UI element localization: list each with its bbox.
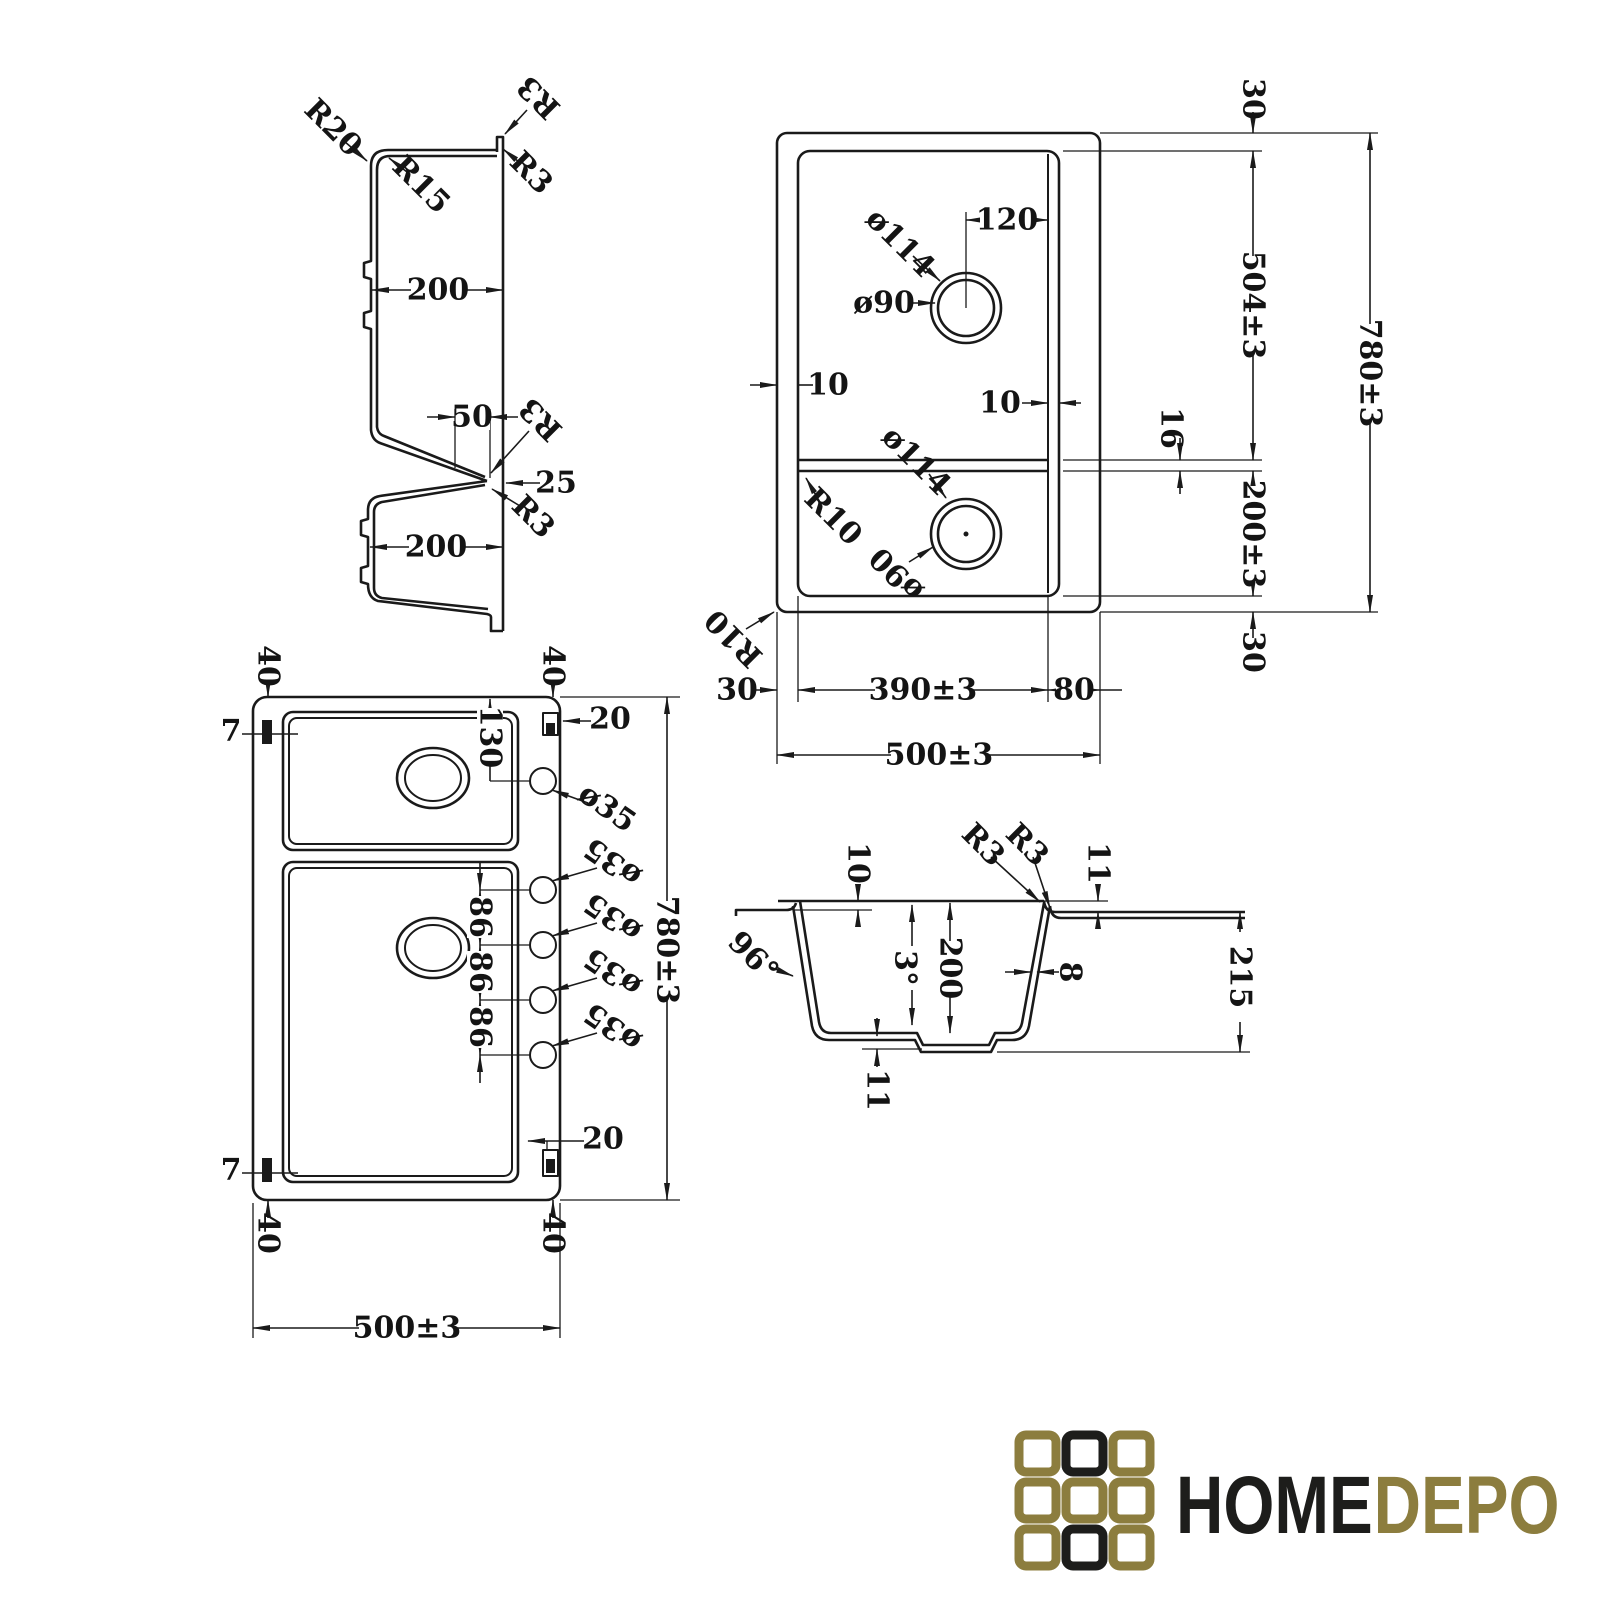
tap-hole-dia-label: ø35 xyxy=(578,995,649,1059)
bowl-depth-label: 200 xyxy=(933,937,968,1000)
overall-length-label: 780±3 xyxy=(1353,319,1388,428)
drain-offset-label: 120 xyxy=(976,203,1039,238)
radius-label: R3 xyxy=(502,144,559,201)
divider-width-label: 16 xyxy=(1154,407,1189,449)
bowl-width-label: 200 xyxy=(407,273,470,308)
tap-hole-dia-label: ø35 xyxy=(578,885,649,949)
hole-pitch-label: 86 xyxy=(463,951,498,993)
overall-width-label: 500±3 xyxy=(353,1311,462,1346)
logo-square xyxy=(1066,1482,1103,1519)
logo-square xyxy=(1019,1529,1056,1566)
overall-width-label: 500±3 xyxy=(885,738,994,773)
side-section-view: 200 200 50 25 R20 R15 R3 R3 R3 R3 xyxy=(297,68,577,631)
bowl-profile-outline xyxy=(736,901,1245,1052)
dimension-lines xyxy=(770,857,1240,1067)
hole-pitch-label: 86 xyxy=(463,1006,498,1048)
draft-angle-label: 3° xyxy=(888,950,923,986)
clip-offset-label: 40 xyxy=(251,645,286,687)
tap-hole-dia-label: ø35 xyxy=(578,940,649,1004)
bowl-width-label: 390±3 xyxy=(869,673,978,708)
logo-square xyxy=(1066,1435,1103,1472)
clip-offset-label: 40 xyxy=(251,1212,286,1254)
brand-logo: HOME DEPO xyxy=(1019,1435,1560,1566)
hole-pitch-label: 86 xyxy=(463,896,498,938)
wall-gap-label: 10 xyxy=(979,386,1021,421)
hole-offset-label: 130 xyxy=(473,706,508,769)
mount-clip xyxy=(546,723,555,735)
clip-size-label: 20 xyxy=(582,1122,624,1157)
drain-center-dot xyxy=(964,532,969,537)
small-bowl-length-label: 200±3 xyxy=(1236,480,1271,589)
edge-offset-label: 30 xyxy=(1236,78,1271,120)
logo-square xyxy=(1113,1529,1150,1566)
logo-wordmark: HOME DEPO xyxy=(1176,1459,1560,1551)
wall-gap-label: 10 xyxy=(807,368,849,403)
technical-drawing-page: 200 200 50 25 R20 R15 R3 R3 R3 R3 xyxy=(0,0,1600,1600)
logo-text-home: HOME xyxy=(1176,1459,1373,1551)
overall-length-label: 780±3 xyxy=(650,896,685,1005)
corner-radius-label: R10 xyxy=(698,602,770,674)
sink-plan-outline xyxy=(253,697,560,1200)
clip-size-label: 7 xyxy=(221,1153,242,1188)
logo-square xyxy=(1113,1482,1150,1519)
logo-text-depo: DEPO xyxy=(1374,1459,1560,1551)
drawing-canvas: 200 200 50 25 R20 R15 R3 R3 R3 R3 xyxy=(0,0,1600,1600)
logo-grid-icon xyxy=(1019,1435,1150,1566)
bottom-slope-label: 11 xyxy=(860,1069,895,1111)
edge-offset-label: 30 xyxy=(716,673,758,708)
corner-radius-label: R10 xyxy=(797,481,869,553)
mount-clip xyxy=(262,720,272,744)
drain-inner-dia-label: ø90 xyxy=(863,540,931,608)
extension-lines xyxy=(795,901,1250,1052)
bowl-section-view: 10 R3 R3 11 96° 3° 200 8 215 11 xyxy=(721,816,1258,1110)
radius-label: R15 xyxy=(385,149,457,221)
logo-square xyxy=(1019,1435,1056,1472)
flange-step-label: 11 xyxy=(1081,842,1116,884)
logo-square xyxy=(1066,1529,1103,1566)
drain-inner-dia-label: ø90 xyxy=(853,286,915,321)
clip-size-label: 7 xyxy=(221,714,242,749)
mount-clip xyxy=(546,1159,555,1173)
clip-offset-label: 40 xyxy=(536,1212,571,1254)
wall-thickness-label: 8 xyxy=(1053,962,1088,983)
total-depth-label: 215 xyxy=(1223,946,1258,1009)
logo-square xyxy=(1113,1435,1150,1472)
edge-offset-label: 30 xyxy=(1236,631,1271,673)
tap-hole-dia-label: ø35 xyxy=(572,776,643,840)
mount-clip xyxy=(262,1158,272,1182)
rim-thickness-label: 10 xyxy=(841,842,876,884)
clip-size-label: 20 xyxy=(589,702,631,737)
bottom-plan-view: 40 40 40 40 7 7 130 20 20 ø35 ø35 ø35 ø3… xyxy=(221,645,685,1345)
radius-label: R3 xyxy=(510,68,567,125)
divider-top-width-label: 50 xyxy=(451,400,493,435)
logo-square xyxy=(1019,1482,1056,1519)
radius-label: R3 xyxy=(998,816,1055,873)
drain-outer-dia-label: ø114 xyxy=(858,201,941,284)
clip-offset-label: 40 xyxy=(536,645,571,687)
divider-depth-label: 25 xyxy=(535,466,577,501)
wall-angle-label: 96° xyxy=(721,925,786,990)
tap-hole-dia-label: ø35 xyxy=(578,830,649,894)
main-bowl-length-label: 504±3 xyxy=(1236,251,1271,360)
top-plan-view: 30 504±3 780±3 16 200±3 30 30 390±3 80 5… xyxy=(698,78,1387,772)
ledge-width-label: 80 xyxy=(1053,673,1095,708)
bowl-width-label: 200 xyxy=(405,530,468,565)
